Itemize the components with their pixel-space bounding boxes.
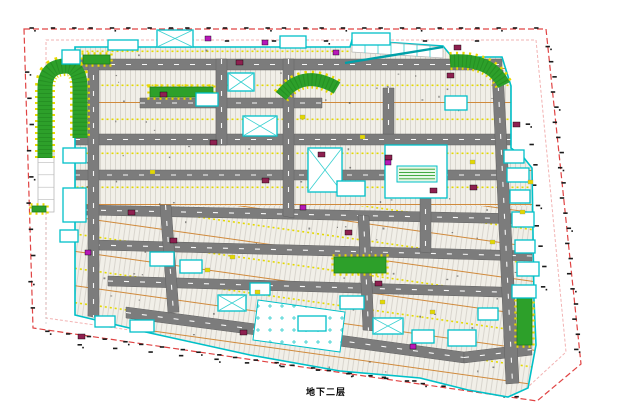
floor-label: 地下二层	[288, 385, 364, 398]
cad-canvas: 地下二层	[0, 0, 627, 415]
site-plan-drawing	[0, 0, 627, 415]
